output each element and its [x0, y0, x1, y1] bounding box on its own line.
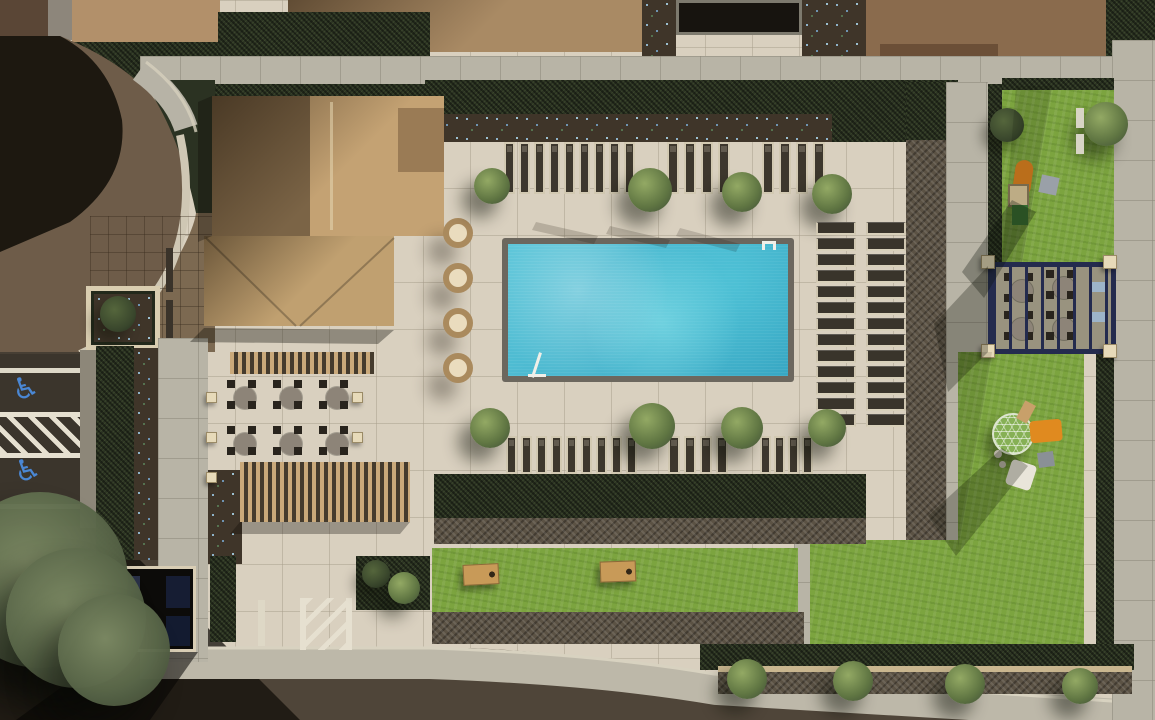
pergola-post: [1103, 255, 1117, 269]
street-tree: [1062, 668, 1098, 704]
sun-lounger-column-east: [866, 350, 906, 363]
round-daybed: [443, 218, 473, 248]
cabana-lounger-row-north: [701, 142, 713, 194]
sun-lounger-column-east: [866, 382, 906, 395]
cabana-lounger-row-north: [609, 142, 620, 194]
cabana-lounger-row-north: [534, 142, 545, 194]
cabana-lounger-row-south: [788, 436, 799, 474]
patio-table-with-chairs: [326, 433, 348, 455]
sun-lounger-column-east: [866, 270, 906, 283]
parking-stall-line: [0, 368, 80, 373]
sun-lounger-column-east: [866, 302, 906, 315]
patio-table-with-chairs: [234, 387, 256, 409]
planting-bed-top-2: [802, 0, 866, 58]
patio-trellis-lower: [240, 462, 410, 522]
parking-stall-line: [258, 600, 265, 646]
cornhole-board: [600, 560, 637, 582]
sun-lounger-column-west: [816, 270, 856, 283]
street-tree: [833, 661, 873, 701]
cabana-lounger-row-south: [802, 436, 813, 474]
deck-tree: [721, 407, 763, 449]
cabana-lounger-row-north: [684, 142, 696, 194]
patio-post: [352, 432, 363, 443]
sun-lounger-column-west: [816, 318, 856, 331]
bed-shrub: [362, 560, 390, 588]
handicap-hatch-zone: [0, 412, 80, 458]
cabana-lounger-row-north: [762, 142, 774, 194]
patio-post: [206, 472, 217, 483]
pergola-beams: [988, 262, 1116, 354]
playground-climber-north: [1038, 174, 1059, 195]
street-tree: [727, 659, 767, 699]
pergola-post: [981, 344, 995, 358]
sun-lounger-column-east: [866, 286, 906, 299]
deck-tree: [812, 174, 852, 214]
gravel-strip-east-of-deck: [906, 140, 948, 546]
sun-lounger-column-west: [816, 334, 856, 347]
flat-roof-dark: [676, 0, 802, 35]
lawn-tree: [1084, 102, 1128, 146]
patio-table-with-chairs: [280, 387, 302, 409]
patio-post: [206, 432, 217, 443]
entry-bench: [166, 248, 173, 292]
patio-table-with-chairs: [280, 433, 302, 455]
sun-lounger-column-west: [816, 254, 856, 267]
deck-tree: [722, 172, 762, 212]
sun-lounger-column-west: [816, 286, 856, 299]
pergola-post: [981, 255, 995, 269]
flowerbed-right-of-sidewalk: [208, 470, 242, 564]
playground-climber-south: [1037, 451, 1055, 468]
bottom-lawn-east: [808, 540, 1084, 646]
parking-curb: [80, 350, 96, 528]
cabana-lounger-row-north: [519, 142, 530, 194]
sun-lounger-column-west: [816, 238, 856, 251]
road-hatch-zone: [300, 598, 352, 650]
site-plan-rendering: ♿♿: [0, 0, 1155, 720]
patio-trellis-upper: [230, 352, 374, 374]
pool-water: [508, 244, 788, 376]
cabana-lounger-row-south: [566, 436, 577, 474]
sun-lounger-column-east: [866, 238, 906, 251]
patio-table-with-chairs: [326, 387, 348, 409]
cabana-lounger-row-north: [779, 142, 791, 194]
deck-tree: [470, 408, 510, 448]
bed-shrub: [388, 572, 420, 604]
sun-lounger-column-east: [866, 318, 906, 331]
sun-lounger-column-east: [866, 254, 906, 267]
cabana-lounger-row-south: [611, 436, 622, 474]
cabana-lounger-row-south: [596, 436, 607, 474]
gravel-below-hedge: [434, 518, 866, 544]
sun-lounger-column-east: [866, 366, 906, 379]
cabana-lounger-row-north: [579, 142, 590, 194]
gravel-band-below-lawn: [432, 612, 804, 644]
building-roof-top-left-2: [72, 0, 220, 44]
pool-handrail-base: [528, 374, 546, 377]
clubhouse-roof-wing-shade: [204, 236, 394, 326]
entry-planter-shrub: [100, 296, 136, 332]
cabana-lounger-row-south: [760, 436, 771, 474]
planting-bed-top-1: [642, 0, 676, 58]
cabana-lounger-row-south: [668, 436, 680, 474]
round-daybed: [443, 308, 473, 338]
mulch-border-lawn-top: [1002, 78, 1114, 90]
building-wall-top-left: [48, 0, 74, 40]
deck-tree: [628, 168, 672, 212]
cabana-lounger-row-south: [521, 436, 532, 474]
patio-post: [206, 392, 217, 403]
lawn-shrub: [990, 108, 1024, 142]
playground-slide-south: [1029, 419, 1063, 444]
cabana-lounger-row-north: [796, 142, 808, 194]
solar-panel: [166, 576, 190, 608]
sun-lounger-column-west: [816, 302, 856, 315]
cabana-lounger-row-south: [536, 436, 547, 474]
sun-lounger-column-west: [816, 222, 856, 235]
playground-stone: [994, 450, 1002, 458]
playground-base-north: [1012, 205, 1028, 225]
playground-canopy-north: [1008, 184, 1029, 207]
cabana-lounger-row-south: [774, 436, 785, 474]
pool-ladder-rail: [773, 241, 776, 250]
large-tree-southwest: [58, 594, 170, 706]
sun-lounger-column-west: [816, 382, 856, 395]
cabana-lounger-row-north: [549, 142, 560, 194]
cabana-lounger-row-south: [581, 436, 592, 474]
round-daybed: [443, 353, 473, 383]
street-tree: [945, 664, 985, 704]
sun-lounger-column-east: [866, 398, 906, 411]
sun-lounger-column-west: [816, 366, 856, 379]
deck-tree: [474, 168, 510, 204]
patio-table-with-chairs: [234, 433, 256, 455]
pergola-post: [1103, 344, 1117, 358]
cabana-lounger-row-south: [684, 436, 696, 474]
deck-tree: [808, 409, 846, 447]
building-roof-top-left: [0, 0, 48, 40]
sun-lounger-column-west: [816, 350, 856, 363]
clubhouse-wood-deck: [398, 108, 444, 172]
flowerbed-top: [432, 114, 832, 142]
hedge-below-loungers: [434, 474, 866, 520]
cornhole-board: [462, 563, 499, 586]
cabana-lounger-row-south: [551, 436, 562, 474]
hedge-strip-east-of-deck: [906, 82, 948, 140]
lawn-bench: [1076, 108, 1084, 128]
sun-lounger-column-east: [866, 334, 906, 347]
cabana-lounger-row-north: [564, 142, 575, 194]
patio-post: [352, 392, 363, 403]
cabana-lounger-row-south: [506, 436, 517, 474]
playground-stone: [999, 461, 1006, 468]
clubhouse-roof-ridge: [330, 102, 333, 230]
pool-ladder-rail: [762, 241, 765, 250]
flowerbed-strip-left: [134, 348, 160, 560]
carport-hedge: [210, 556, 236, 642]
deck-tree: [629, 403, 675, 449]
cabana-lounger-row-south: [700, 436, 712, 474]
cabana-lounger-row-north: [594, 142, 605, 194]
solar-panel: [166, 616, 190, 646]
sun-lounger-column-east: [866, 414, 906, 427]
entry-bench: [166, 300, 173, 340]
sun-lounger-column-east: [866, 222, 906, 235]
round-daybed: [443, 263, 473, 293]
lawn-bench: [1076, 134, 1084, 154]
